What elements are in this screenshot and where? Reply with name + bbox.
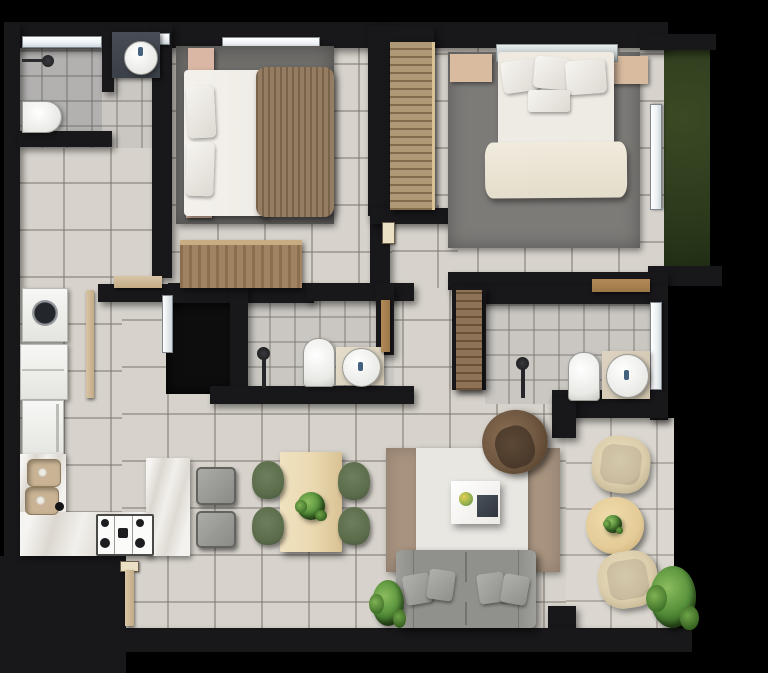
wardrobe-corridor — [390, 42, 435, 210]
window-ensuite-side — [650, 302, 662, 390]
service-door — [86, 290, 94, 398]
sofa-back-seam — [465, 552, 467, 582]
closet-glass-door — [162, 295, 173, 353]
burner-5 — [135, 538, 145, 548]
sofa — [396, 550, 536, 628]
window-master-side — [650, 104, 662, 210]
wall-bathmid-top — [306, 283, 414, 301]
door-master — [592, 279, 650, 292]
wall-terrace-north-stub — [552, 398, 576, 438]
shower-head-ensuite — [516, 357, 529, 370]
wall-bottom — [122, 628, 692, 652]
shower-head-bath1 — [42, 55, 54, 67]
bed-master — [494, 44, 618, 196]
bed1-blanket — [256, 67, 334, 217]
dining-chair-3 — [338, 462, 370, 500]
door-jamb-corridor-left — [382, 222, 395, 244]
coffee-table-tray — [477, 495, 498, 517]
faucet-bathmid — [358, 362, 363, 371]
living-floor-plant — [372, 580, 404, 626]
terrace-floor-plant — [650, 566, 696, 628]
appliance-seam — [22, 369, 64, 371]
window-bath1-left — [22, 36, 102, 48]
door-bathmid — [381, 300, 390, 352]
dresser-bedroom1 — [180, 240, 302, 288]
bar-stool-2 — [196, 511, 236, 548]
bed-bedroom1 — [184, 70, 332, 216]
wall-left — [4, 22, 20, 560]
wall-bathmid-left — [230, 283, 248, 393]
bed1-pillow-2 — [185, 142, 215, 197]
bed2-pillow-3 — [565, 59, 607, 96]
dining-chair-4 — [338, 507, 370, 545]
shower-head-bathmid — [257, 347, 270, 360]
washer-door — [32, 300, 58, 326]
sink-drain-1 — [38, 468, 47, 477]
coffee-table-flowers — [459, 492, 473, 506]
fridge-handle — [56, 404, 59, 452]
burner-1 — [101, 519, 109, 527]
kitchen-faucet — [55, 502, 64, 511]
dining-chair-1 — [252, 461, 284, 499]
bed2-throw-pillow — [528, 90, 570, 112]
burner-4 — [136, 519, 144, 527]
terrace-chair-1-cushion — [599, 443, 643, 486]
bar-stool-1 — [196, 467, 236, 505]
sink-drain-2 — [36, 496, 45, 505]
wall-grass-top — [640, 34, 716, 50]
grass-planter — [664, 46, 710, 282]
terrace-table-plant — [604, 515, 622, 533]
burner-2 — [100, 538, 110, 548]
terrace-chair-2-cushion — [605, 557, 651, 602]
door-bedroom1 — [114, 276, 162, 288]
wall-entry-mass — [0, 556, 126, 673]
bed2-blanket — [485, 141, 627, 198]
toilet-bathmid — [303, 338, 335, 387]
dining-chair-2 — [252, 507, 284, 545]
toilet-bath1 — [22, 101, 62, 133]
sofa-pillow-2 — [426, 568, 456, 601]
faucet-ensuite — [624, 370, 629, 380]
toilet-ensuite — [568, 352, 600, 401]
dining-centerpiece-plant — [297, 492, 325, 520]
tall-cabinet-ensuite — [456, 290, 482, 390]
floorplan-canvas — [0, 0, 768, 673]
wall-bath1-bottom — [18, 131, 112, 147]
sofa-seat-cushions — [411, 602, 521, 625]
bed1-pillow-1 — [186, 85, 217, 138]
nightstand-master-left — [450, 54, 492, 82]
appliance-white — [20, 344, 68, 400]
burner-3 — [118, 528, 128, 538]
faucet-bath1 — [138, 47, 143, 56]
entrance-door — [125, 570, 134, 626]
wall-bathmid-bottom — [210, 386, 414, 404]
